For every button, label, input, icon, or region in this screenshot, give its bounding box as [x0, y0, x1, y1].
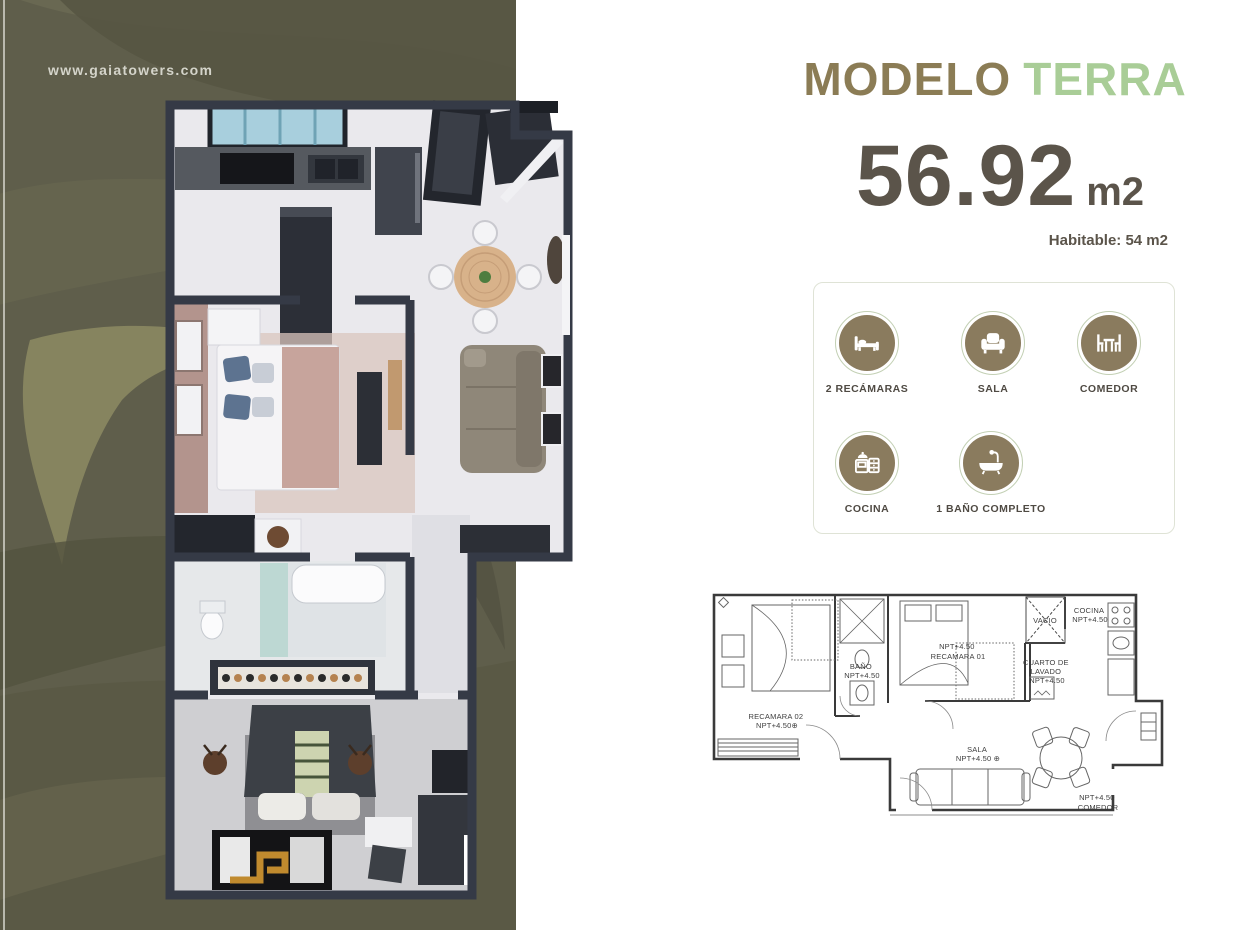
vanity-3d [172, 515, 301, 557]
balcony-door-3d [562, 235, 570, 335]
area-unit: m2 [1086, 170, 1144, 214]
plan2d-labels: RECAMARA 02 NPT+4.50⊕ BAÑO NPT+4.50 NPT+… [748, 606, 1118, 812]
armchair-icon [961, 311, 1025, 375]
bed-icon [835, 311, 899, 375]
label-cuarto-lavado: CUARTO DE LAVADO NPT+4.50 [1023, 658, 1071, 685]
label-comedor: NPT+4.50 COMEDOR [1078, 793, 1119, 812]
feature-bathroom: 1 BAÑO COMPLETO [936, 431, 1046, 515]
area-value: 56.92 [856, 128, 1076, 224]
title-modelo: MODELO [803, 53, 1011, 105]
website-url: www.gaiatowers.com [48, 62, 213, 78]
brochure-page: www.gaiatowers.com [0, 0, 1242, 930]
page-title: MODELOTERRA [770, 52, 1220, 106]
feature-kitchen: COCINA [812, 431, 922, 515]
furniture-2d [718, 598, 1156, 815]
feature-dining: COMEDOR [1054, 311, 1164, 395]
label-vacio: VACIO [1033, 616, 1057, 625]
title-terra: TERRA [1023, 53, 1186, 105]
label-recamara01: NPT+4.50 RECAMARA 01 [931, 642, 986, 661]
stove-icon [835, 431, 899, 495]
walls-2d [714, 595, 1162, 810]
floorplan-3d-render [160, 95, 580, 907]
feature-living: SALA [938, 311, 1048, 395]
label-bano: BAÑO NPT+4.50 [844, 662, 880, 680]
bathtub-icon [959, 431, 1023, 495]
left-edge-highlight [3, 0, 5, 930]
label-sala: SALA NPT+4.50 ⊕ [956, 745, 1000, 763]
label-cocina: COCINA NPT+4.50 [1072, 606, 1108, 624]
feature-bedrooms: 2 RECÁMARAS [812, 311, 922, 395]
habitable-area: Habitable: 54 m2 [900, 232, 1168, 249]
dining-table-icon [1077, 311, 1141, 375]
features-box: 2 RECÁMARAS SALA [813, 282, 1175, 534]
floorplan-2d-drawing: RECAMARA 02 NPT+4.50⊕ BAÑO NPT+4.50 NPT+… [700, 583, 1205, 848]
area-total: 56.92m2 [790, 136, 1210, 218]
label-recamara02: RECAMARA 02 NPT+4.50⊕ [748, 712, 805, 730]
closet-3d [210, 660, 375, 695]
